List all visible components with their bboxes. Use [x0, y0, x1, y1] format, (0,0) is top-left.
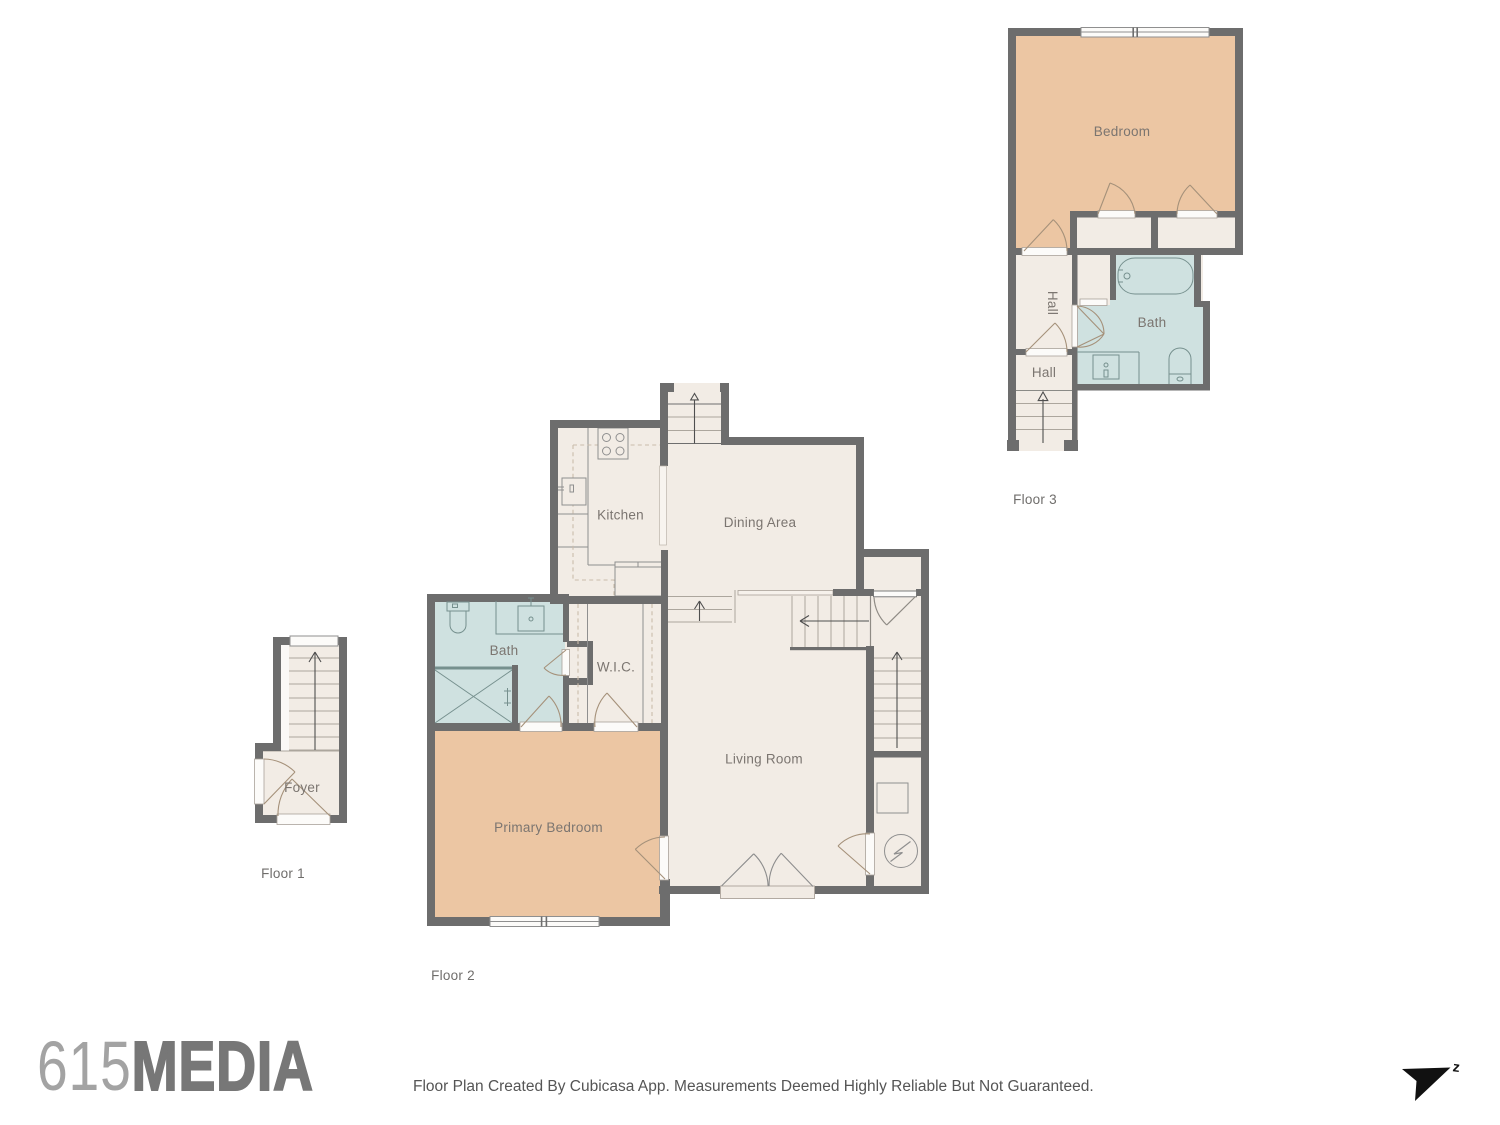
svg-text:Foyer: Foyer	[284, 780, 320, 795]
svg-text:Floor 3: Floor 3	[1013, 492, 1057, 507]
svg-text:Primary Bedroom: Primary Bedroom	[494, 820, 603, 835]
svg-text:Kitchen: Kitchen	[597, 508, 644, 523]
svg-text:Hall: Hall	[1032, 365, 1056, 380]
svg-text:Floor Plan Created By Cubicasa: Floor Plan Created By Cubicasa App. Meas…	[413, 1078, 1094, 1095]
svg-text:Living Room: Living Room	[725, 752, 803, 767]
svg-text:615MEDIA: 615MEDIA	[37, 1028, 314, 1106]
svg-text:Floor 2: Floor 2	[431, 968, 475, 983]
svg-text:Bath: Bath	[490, 643, 519, 658]
svg-text:Floor 1: Floor 1	[261, 866, 305, 881]
svg-text:Bedroom: Bedroom	[1094, 124, 1151, 139]
svg-text:Hall: Hall	[1045, 291, 1060, 315]
svg-text:Dining Area: Dining Area	[724, 515, 797, 530]
svg-text:W.I.C.: W.I.C.	[597, 660, 635, 675]
svg-text:Bath: Bath	[1138, 315, 1167, 330]
